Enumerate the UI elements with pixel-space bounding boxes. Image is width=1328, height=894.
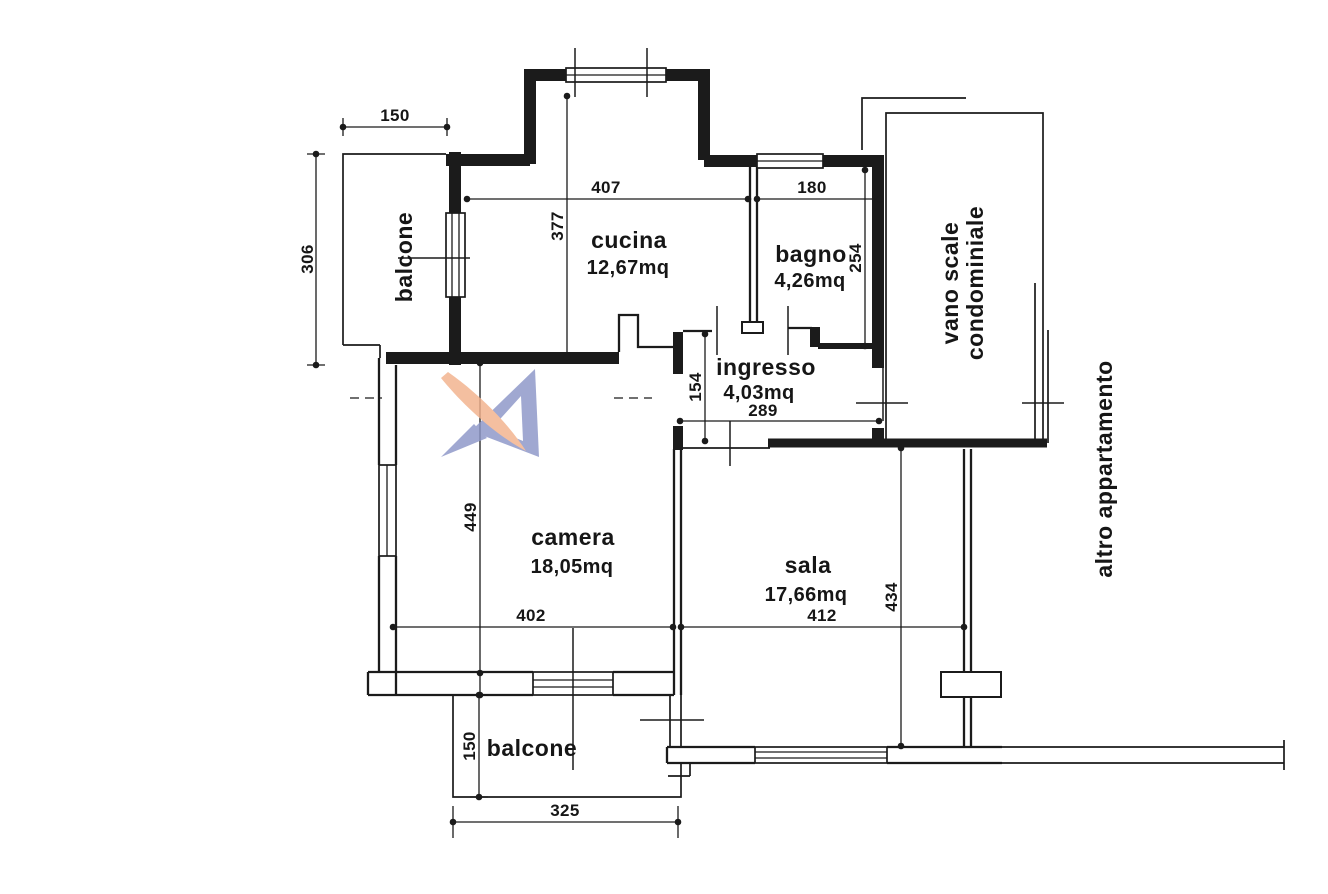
dim-cucina-height: 377 bbox=[548, 211, 567, 241]
room-label-vano-scale-2: condominiale bbox=[962, 206, 988, 360]
dim-balcone-bottom-width: 325 bbox=[550, 801, 580, 820]
dim-camera-height: 449 bbox=[461, 502, 480, 532]
entrance-door-mark bbox=[856, 368, 908, 421]
kitchen-niche bbox=[619, 315, 678, 352]
window-kitchen-bay bbox=[566, 68, 666, 82]
watermark-logo bbox=[441, 369, 539, 457]
room-area-bagno: 4,26mq bbox=[774, 270, 845, 292]
window-living-south bbox=[755, 747, 887, 763]
dim-camera-width: 402 bbox=[516, 606, 546, 625]
party-wall bbox=[964, 449, 971, 747]
cavity-walls bbox=[368, 358, 1002, 763]
window-bedroom-west bbox=[379, 465, 396, 556]
window-balcony-kitchen bbox=[446, 213, 465, 297]
room-area-camera: 18,05mq bbox=[531, 556, 614, 578]
floorplan-drawing: 150 306 407 180 377 254 154 289 449 402 … bbox=[0, 0, 1328, 894]
room-label-sala: sala bbox=[785, 552, 832, 578]
wall-end-slab bbox=[742, 322, 763, 333]
window-bathroom bbox=[757, 154, 823, 168]
dimension-labels: 150 306 407 180 377 254 154 289 449 402 … bbox=[298, 106, 901, 820]
room-label-cucina: cucina bbox=[591, 227, 667, 253]
dim-balcone-bottom-height: 150 bbox=[460, 731, 479, 761]
dim-bagno-width: 180 bbox=[797, 178, 827, 197]
room-area-sala: 17,66mq bbox=[765, 584, 848, 606]
pillar bbox=[941, 672, 1001, 697]
neighbor-outline-top-right bbox=[862, 98, 966, 150]
room-label-balcone-bottom: balcone bbox=[487, 735, 577, 761]
room-label-balcone-top: balcone bbox=[391, 212, 417, 302]
room-label-camera: camera bbox=[531, 524, 615, 550]
room-label-vano-scale-1: vano scale bbox=[937, 222, 963, 345]
dim-sala-height: 434 bbox=[882, 582, 901, 612]
dimension-lines bbox=[307, 93, 967, 838]
room-label-bagno: bagno bbox=[775, 241, 847, 267]
dim-sala-width: 412 bbox=[807, 606, 837, 625]
dim-ingresso-height: 154 bbox=[686, 372, 705, 402]
room-area-cucina: 12,67mq bbox=[587, 257, 670, 279]
room-labels: balcone cucina 12,67mq bagno 4,26mq vano… bbox=[391, 206, 1117, 761]
neighbor-wall-bottom-right bbox=[1002, 740, 1284, 770]
room-label-ingresso: ingresso bbox=[716, 354, 816, 380]
dim-bagno-height: 254 bbox=[846, 243, 865, 273]
room-label-altro-appartamento: altro appartamento bbox=[1091, 360, 1117, 577]
room-area-ingresso: 4,03mq bbox=[723, 382, 794, 404]
dim-balcone-top-width: 150 bbox=[380, 106, 410, 125]
floorplan-sheet: 150 306 407 180 377 254 154 289 449 402 … bbox=[0, 0, 1328, 894]
dim-cucina-width: 407 bbox=[591, 178, 621, 197]
dim-balcone-top-height: 306 bbox=[298, 244, 317, 274]
